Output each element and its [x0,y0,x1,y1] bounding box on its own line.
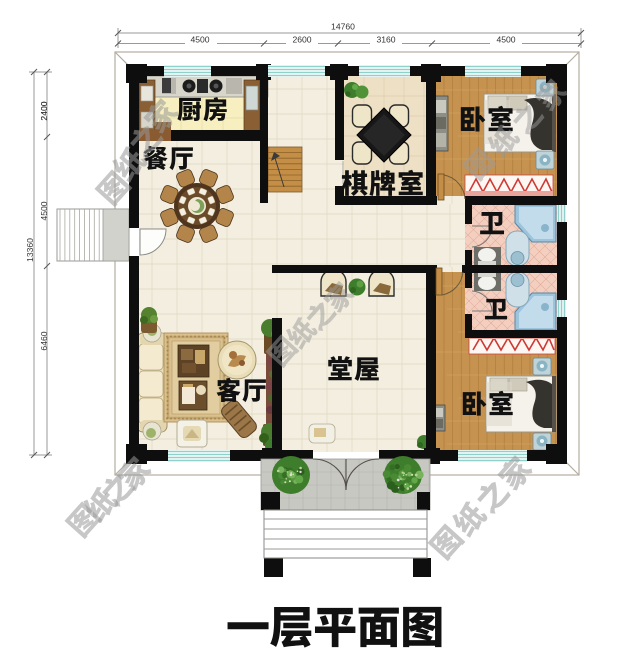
svg-text:13360: 13360 [25,238,35,262]
svg-text:14760: 14760 [331,22,355,32]
svg-text:4500: 4500 [39,201,49,220]
svg-text:2400: 2400 [39,101,49,120]
svg-text:3160: 3160 [376,35,395,45]
svg-text:2600: 2600 [292,35,311,45]
svg-text:6460: 6460 [39,331,49,350]
svg-text:4500: 4500 [496,35,515,45]
svg-text:4500: 4500 [190,35,209,45]
